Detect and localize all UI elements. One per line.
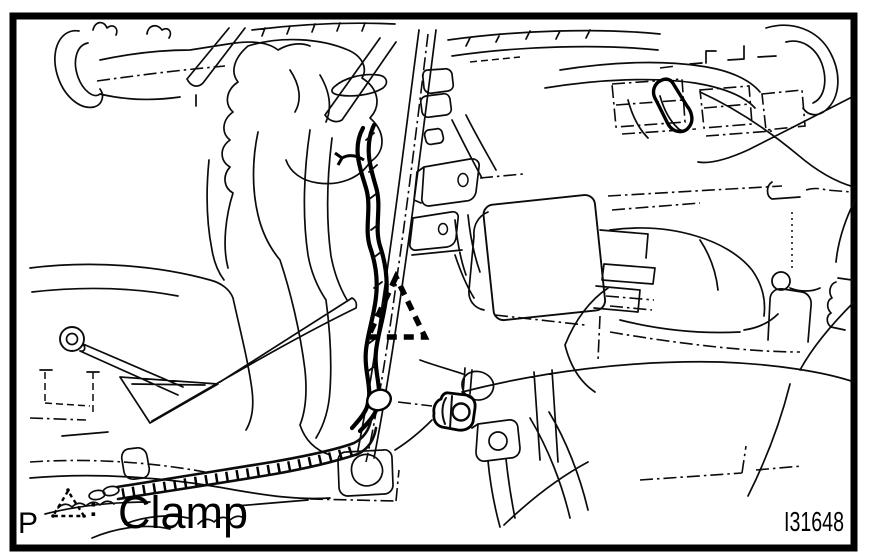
line-art-solid (30, 23, 855, 538)
legend-triangle-dot-right (82, 514, 86, 518)
service-manual-figure: P : Clamp I31648 (0, 0, 896, 559)
bolt-bracket (472, 420, 520, 461)
bolt-bracket-hole (489, 432, 507, 450)
flange-bolt (434, 393, 475, 430)
legend: P : Clamp (18, 487, 248, 540)
legend-label: Clamp (118, 487, 248, 538)
grommet-circle-right (772, 272, 790, 290)
harness-tube-right (360, 125, 387, 431)
legend-prefix: P (18, 507, 38, 540)
engine-bay-illustration: P : Clamp I31648 (0, 0, 896, 559)
tie-rod (60, 327, 84, 351)
legend-separator: : (89, 492, 98, 522)
legend-triangle-dot-top (66, 488, 70, 492)
legend-triangle-dot-left (51, 514, 55, 518)
relay-box (483, 194, 607, 321)
wiring-harness-tubes (335, 125, 394, 431)
bracket-hole-lower (439, 224, 448, 235)
bolt-facets (442, 396, 452, 428)
bracket-hole-upper (458, 174, 468, 187)
relay-box-outline (483, 194, 607, 321)
figure-number: I31648 (784, 506, 844, 537)
line-art-dash-dot (30, 34, 852, 501)
tie-rod-eye-outer (60, 327, 84, 351)
line-art-dashed (45, 57, 520, 413)
engine-bay-line-art (30, 23, 855, 538)
bolt-head-circle (453, 404, 470, 421)
tie-rod-eye-inner (67, 334, 78, 345)
bolt-bracket-outline (472, 420, 520, 461)
